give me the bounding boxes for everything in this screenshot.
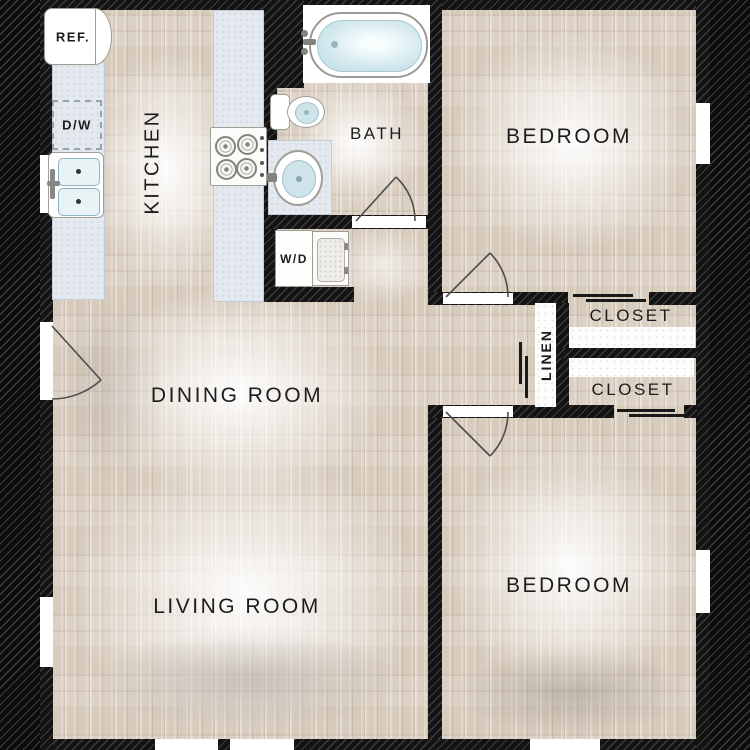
bathtub-faucet-knob-2 bbox=[301, 48, 308, 55]
bedroom-bottom-door-opening bbox=[443, 406, 513, 417]
closet-top-label: CLOSET bbox=[589, 306, 672, 326]
refrigerator-label: REF. bbox=[56, 29, 90, 44]
bathtub-drain bbox=[331, 41, 338, 48]
stove-burner-3 bbox=[216, 159, 237, 180]
stove-knob-3 bbox=[260, 161, 264, 165]
washer-latch-1 bbox=[344, 243, 348, 250]
vanity-drain bbox=[296, 176, 302, 182]
toilet-bowl bbox=[287, 96, 325, 128]
closet-top-bypass-door-1 bbox=[573, 294, 633, 297]
bathtub bbox=[309, 12, 428, 78]
entry-door-opening bbox=[40, 322, 53, 400]
stove bbox=[210, 127, 267, 186]
vanity-basin-inner bbox=[282, 160, 316, 198]
sink-drain-top bbox=[76, 169, 81, 174]
kitchen-label: KITCHEN bbox=[142, 109, 165, 214]
bedroom-top-label: BEDROOM bbox=[506, 125, 632, 149]
linen-bypass-door-1 bbox=[519, 342, 522, 384]
vanity-basin bbox=[273, 150, 323, 206]
linen-bypass-door-2 bbox=[525, 356, 528, 398]
bedroom-top-door-opening bbox=[443, 293, 513, 304]
sink-basin-top bbox=[58, 158, 100, 186]
bath-door-opening bbox=[352, 216, 426, 228]
wall-bedroom-top-bottom-right bbox=[649, 292, 697, 305]
floor-smudge-living bbox=[95, 630, 405, 730]
sink-drain-bottom bbox=[76, 199, 81, 204]
window-living-left bbox=[40, 597, 53, 667]
closet-bottom-shelf bbox=[569, 358, 694, 377]
vanity-faucet bbox=[267, 173, 277, 182]
closet-bottom-label: CLOSET bbox=[591, 380, 674, 400]
stove-knob-1 bbox=[260, 136, 264, 140]
bathtub-faucet-knob-1 bbox=[301, 30, 308, 37]
window-bedroom-bottom-bottom bbox=[530, 739, 600, 750]
floor-plan: REF. D/W bbox=[0, 0, 750, 750]
closet-top-bypass-door-2 bbox=[586, 299, 646, 302]
bathtub-spout bbox=[303, 39, 316, 45]
closet-bottom-bypass-door-1 bbox=[617, 409, 675, 412]
dining-room-label: DINING ROOM bbox=[151, 384, 323, 408]
wall-bath-right bbox=[428, 0, 442, 305]
window-living-bottom-2 bbox=[230, 739, 294, 750]
window-living-bottom-1 bbox=[155, 739, 218, 750]
washer-dryer-closet: W/D bbox=[275, 230, 313, 287]
wall-living-bedroom bbox=[428, 418, 442, 739]
stove-knob-2 bbox=[260, 148, 264, 152]
linen-label: LINEN bbox=[538, 329, 554, 381]
toilet-bowl-inner bbox=[295, 102, 319, 124]
dishwasher: D/W bbox=[52, 100, 102, 150]
stove-burner-2 bbox=[237, 134, 258, 155]
washer-dryer-label: W/D bbox=[280, 252, 308, 266]
window-bedroom-top-right bbox=[696, 103, 710, 164]
dishwasher-label: D/W bbox=[62, 118, 92, 133]
floor-smudge-dining bbox=[55, 295, 165, 485]
closet-bottom-bypass-door-2 bbox=[629, 414, 687, 417]
wall-bottom bbox=[40, 739, 710, 750]
stove-burner-1 bbox=[215, 136, 236, 157]
washer-latch-2 bbox=[344, 267, 348, 274]
stove-burner-4 bbox=[236, 158, 257, 179]
washer-unit bbox=[312, 231, 349, 286]
kitchen-sink bbox=[48, 152, 104, 218]
floor-smudge-bedroom-bottom bbox=[450, 650, 695, 735]
sink-basin-bottom bbox=[58, 188, 100, 216]
toilet-flush-dot bbox=[304, 110, 309, 115]
living-room-label: LIVING ROOM bbox=[153, 595, 321, 619]
closet-top-shelf bbox=[569, 327, 695, 348]
refrigerator: REF. bbox=[44, 8, 102, 65]
wall-tub-left bbox=[262, 0, 304, 88]
window-bedroom-bottom-right bbox=[696, 550, 710, 613]
kitchen-faucet-handle bbox=[47, 181, 60, 186]
washer-door bbox=[317, 238, 345, 282]
bath-label: BATH bbox=[350, 124, 404, 144]
wall-closet-divider bbox=[556, 348, 697, 358]
bedroom-bottom-label: BEDROOM bbox=[506, 574, 632, 598]
wall-wd-bottom bbox=[262, 287, 354, 302]
stove-knob-4 bbox=[260, 173, 264, 177]
